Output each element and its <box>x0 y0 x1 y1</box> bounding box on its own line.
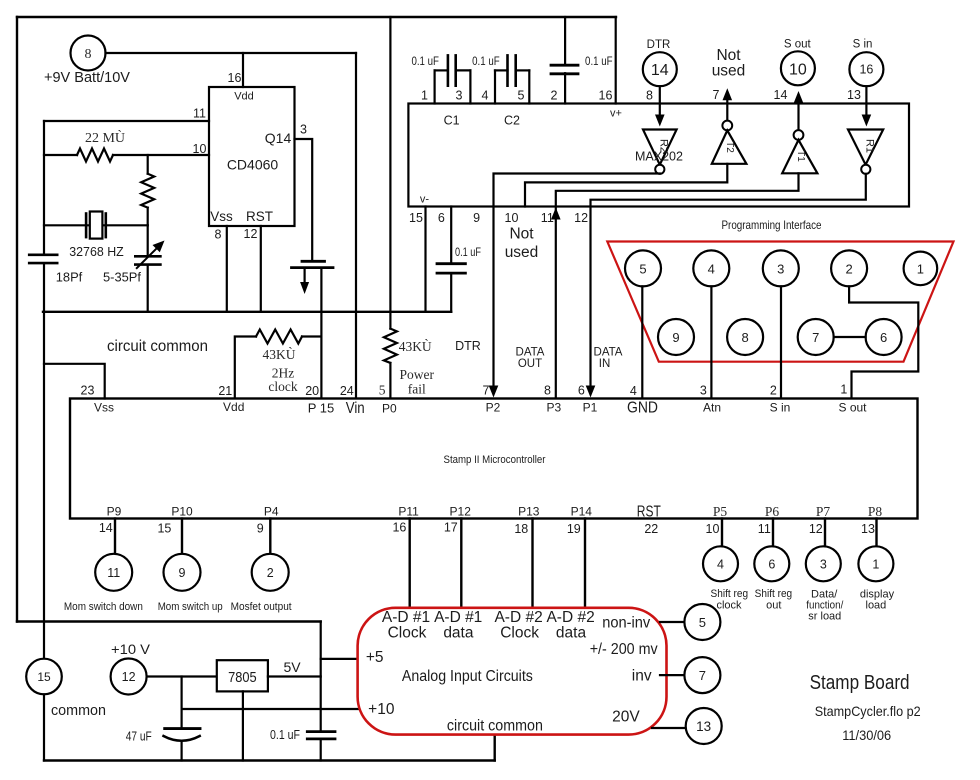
svg-text:24: 24 <box>340 384 354 398</box>
svg-text:Clock: Clock <box>500 624 539 641</box>
svg-text:1: 1 <box>421 89 428 103</box>
svg-text:8: 8 <box>544 384 551 398</box>
svg-text:data: data <box>556 624 587 641</box>
svg-text:Vin: Vin <box>346 400 365 417</box>
svg-text:Stamp II Microcontroller: Stamp II Microcontroller <box>444 454 546 466</box>
svg-text:16: 16 <box>859 63 873 77</box>
svg-text:P10: P10 <box>171 505 193 519</box>
svg-text:v+: v+ <box>610 108 622 120</box>
svg-text:12: 12 <box>122 670 136 684</box>
svg-text:10: 10 <box>789 62 807 79</box>
svg-text:13: 13 <box>847 88 861 102</box>
svg-text:DTR: DTR <box>647 39 671 51</box>
svg-text:A-D #1: A-D #1 <box>382 609 430 626</box>
svg-text:P9: P9 <box>107 505 122 519</box>
svg-text:8: 8 <box>85 47 92 62</box>
svg-text:0.1 uF: 0.1 uF <box>455 247 481 259</box>
svg-text:6: 6 <box>578 384 585 398</box>
svg-text:S out: S out <box>838 401 867 415</box>
svg-text:Analog Input Circuits: Analog Input Circuits <box>402 668 533 685</box>
svg-text:P7: P7 <box>816 504 831 519</box>
svg-text:Mom switch up: Mom switch up <box>158 601 223 613</box>
svg-text:47 uF: 47 uF <box>126 730 152 744</box>
svg-text:5: 5 <box>639 262 646 277</box>
svg-text:0.1 uF: 0.1 uF <box>472 54 500 68</box>
svg-text:Stamp Board: Stamp Board <box>810 672 910 694</box>
svg-text:14: 14 <box>651 62 669 79</box>
svg-text:P5: P5 <box>713 504 728 519</box>
svg-text:+/- 200 mv: +/- 200 mv <box>590 641 658 658</box>
svg-text:P6: P6 <box>765 504 780 519</box>
svg-text:Q14: Q14 <box>265 130 292 146</box>
svg-text:Vdd: Vdd <box>234 91 254 103</box>
svg-text:Mosfet output: Mosfet output <box>231 601 292 613</box>
svg-text:A-D #2: A-D #2 <box>546 609 594 626</box>
svg-text:Not: Not <box>509 226 534 243</box>
svg-text:11: 11 <box>107 566 120 580</box>
svg-text:16: 16 <box>599 89 613 103</box>
svg-text:OUT: OUT <box>518 358 542 370</box>
svg-text:7: 7 <box>483 384 490 398</box>
svg-text:18Pf: 18Pf <box>56 271 83 285</box>
svg-text:3: 3 <box>300 123 307 137</box>
svg-text:DTR: DTR <box>455 339 481 353</box>
svg-text:7: 7 <box>812 330 819 345</box>
svg-text:15: 15 <box>37 670 51 684</box>
svg-text:Mom switch down: Mom switch down <box>64 601 143 613</box>
svg-text:15: 15 <box>157 522 171 536</box>
svg-text:P3: P3 <box>546 401 561 415</box>
svg-text:3: 3 <box>777 262 784 277</box>
svg-text:fail: fail <box>408 382 426 397</box>
svg-text:6: 6 <box>880 330 887 345</box>
svg-text:7: 7 <box>713 88 720 102</box>
svg-text:13: 13 <box>861 522 875 536</box>
svg-text:23: 23 <box>81 384 95 398</box>
svg-text:CD4060: CD4060 <box>227 157 279 173</box>
svg-text:circuit common: circuit common <box>447 718 543 735</box>
svg-text:17: 17 <box>444 521 458 535</box>
svg-text:P2: P2 <box>486 401 501 415</box>
svg-text:Clock: Clock <box>388 624 427 641</box>
svg-text:14: 14 <box>99 521 113 535</box>
svg-text:Atn: Atn <box>703 401 721 415</box>
svg-text:non-inv: non-inv <box>602 614 650 631</box>
svg-text:A-D #2: A-D #2 <box>494 609 542 626</box>
svg-text:5: 5 <box>699 615 706 630</box>
svg-text:11: 11 <box>758 522 771 536</box>
svg-text:4: 4 <box>630 384 637 398</box>
svg-text:0.1 uF: 0.1 uF <box>270 728 300 742</box>
svg-text:P4: P4 <box>264 505 279 519</box>
svg-text:Not: Not <box>716 47 741 64</box>
svg-text:S out: S out <box>784 39 812 51</box>
svg-text:13: 13 <box>696 719 711 734</box>
svg-text:P0: P0 <box>382 402 397 416</box>
svg-text:7: 7 <box>699 668 706 683</box>
svg-text:3: 3 <box>820 558 827 572</box>
svg-text:5: 5 <box>379 383 386 398</box>
svg-text:P1: P1 <box>583 401 598 415</box>
svg-text:R1: R1 <box>864 139 876 153</box>
svg-text:20: 20 <box>305 384 319 398</box>
svg-text:7805: 7805 <box>228 669 257 686</box>
svg-text:9: 9 <box>473 211 480 225</box>
svg-text:IN: IN <box>599 358 611 370</box>
svg-text:RST: RST <box>637 504 661 521</box>
svg-text:+9V Batt/10V: +9V Batt/10V <box>44 69 130 86</box>
svg-text:32768 HZ: 32768 HZ <box>69 245 124 259</box>
svg-text:12: 12 <box>809 522 823 536</box>
svg-text:T2: T2 <box>724 141 735 153</box>
svg-text:5: 5 <box>518 89 525 103</box>
svg-text:22 MÙ: 22 MÙ <box>85 130 125 145</box>
svg-text:2: 2 <box>770 384 777 398</box>
svg-text:6: 6 <box>768 558 775 572</box>
svg-text:S in: S in <box>770 401 791 415</box>
svg-text:P8: P8 <box>868 504 883 519</box>
svg-text:0.1 uF: 0.1 uF <box>411 54 439 68</box>
svg-text:inv: inv <box>632 667 652 684</box>
svg-text:9: 9 <box>257 522 264 536</box>
svg-text:8: 8 <box>646 89 653 103</box>
svg-text:sr load: sr load <box>808 611 841 623</box>
svg-text:11: 11 <box>541 211 554 225</box>
svg-text:v-: v- <box>420 194 430 206</box>
svg-text:used: used <box>505 244 539 261</box>
svg-text:4: 4 <box>482 89 489 103</box>
svg-text:3: 3 <box>700 384 707 398</box>
svg-text:22: 22 <box>644 522 658 536</box>
svg-text:15: 15 <box>409 211 423 225</box>
svg-text:4: 4 <box>717 558 724 572</box>
svg-text:P13: P13 <box>518 505 540 519</box>
svg-text:RST: RST <box>246 209 273 224</box>
svg-text:load: load <box>866 600 887 612</box>
svg-text:+10: +10 <box>368 701 395 718</box>
svg-text:Vss: Vss <box>94 401 114 415</box>
svg-text:2: 2 <box>551 89 558 103</box>
svg-text:DATA: DATA <box>594 347 623 359</box>
svg-text:14: 14 <box>774 88 788 102</box>
svg-text:C1: C1 <box>444 114 460 128</box>
svg-text:Shift reg: Shift reg <box>711 588 749 600</box>
svg-text:5V: 5V <box>283 659 301 675</box>
svg-text:12: 12 <box>574 211 588 225</box>
svg-text:9: 9 <box>672 330 679 345</box>
svg-text:used: used <box>712 63 746 80</box>
svg-text:9: 9 <box>179 566 186 580</box>
svg-text:16: 16 <box>392 521 406 535</box>
svg-text:11/30/06: 11/30/06 <box>842 727 891 743</box>
svg-text:data: data <box>443 624 474 641</box>
svg-text:+5: +5 <box>366 649 384 666</box>
svg-text:Vss: Vss <box>210 209 233 224</box>
svg-text:10: 10 <box>706 522 720 536</box>
svg-text:S in: S in <box>853 39 873 51</box>
svg-text:8: 8 <box>741 330 748 345</box>
svg-text:P14: P14 <box>571 505 593 519</box>
svg-text:4: 4 <box>708 262 715 277</box>
svg-text:19: 19 <box>567 522 581 536</box>
svg-text:Shift reg: Shift reg <box>755 588 793 600</box>
svg-text:GND: GND <box>627 400 658 417</box>
svg-text:T1: T1 <box>795 150 806 162</box>
svg-text:Power: Power <box>400 367 435 382</box>
svg-text:1: 1 <box>917 262 924 277</box>
svg-text:C2: C2 <box>504 114 520 128</box>
svg-text:18: 18 <box>514 522 528 536</box>
svg-text:StampCycler.flo p2: StampCycler.flo p2 <box>815 703 921 719</box>
svg-text:8: 8 <box>215 228 222 242</box>
svg-text:10: 10 <box>505 211 519 225</box>
svg-text:clock: clock <box>268 379 297 394</box>
svg-text:+10 V: +10 V <box>111 642 150 657</box>
svg-text:6: 6 <box>438 211 445 225</box>
svg-text:1: 1 <box>840 383 847 397</box>
svg-text:11: 11 <box>193 107 206 121</box>
svg-text:0.1 uF: 0.1 uF <box>585 54 613 68</box>
svg-text:5-35Pf: 5-35Pf <box>103 271 142 285</box>
svg-text:3: 3 <box>456 89 463 103</box>
svg-text:A-D #1: A-D #1 <box>434 609 482 626</box>
svg-text:P12: P12 <box>450 505 472 519</box>
svg-text:43KÙ: 43KÙ <box>263 347 296 362</box>
svg-text:circuit common: circuit common <box>107 338 208 355</box>
svg-text:21: 21 <box>218 384 232 398</box>
svg-text:20V: 20V <box>612 709 640 726</box>
svg-text:2: 2 <box>845 262 852 277</box>
svg-text:common: common <box>51 702 106 719</box>
svg-text:12: 12 <box>244 227 258 241</box>
svg-text:out: out <box>766 600 781 612</box>
svg-text:43KÙ: 43KÙ <box>399 339 432 354</box>
svg-text:16: 16 <box>228 71 242 85</box>
svg-text:10: 10 <box>193 142 207 156</box>
svg-text:2: 2 <box>267 566 274 580</box>
svg-text:clock: clock <box>716 600 742 612</box>
svg-text:1: 1 <box>872 558 879 572</box>
svg-text:P 15: P 15 <box>308 401 335 416</box>
svg-text:Programming Interface: Programming Interface <box>722 218 822 232</box>
svg-text:DATA: DATA <box>516 347 545 359</box>
svg-text:P11: P11 <box>398 505 419 519</box>
svg-text:Vdd: Vdd <box>223 400 244 414</box>
svg-text:MAX202: MAX202 <box>635 150 683 164</box>
